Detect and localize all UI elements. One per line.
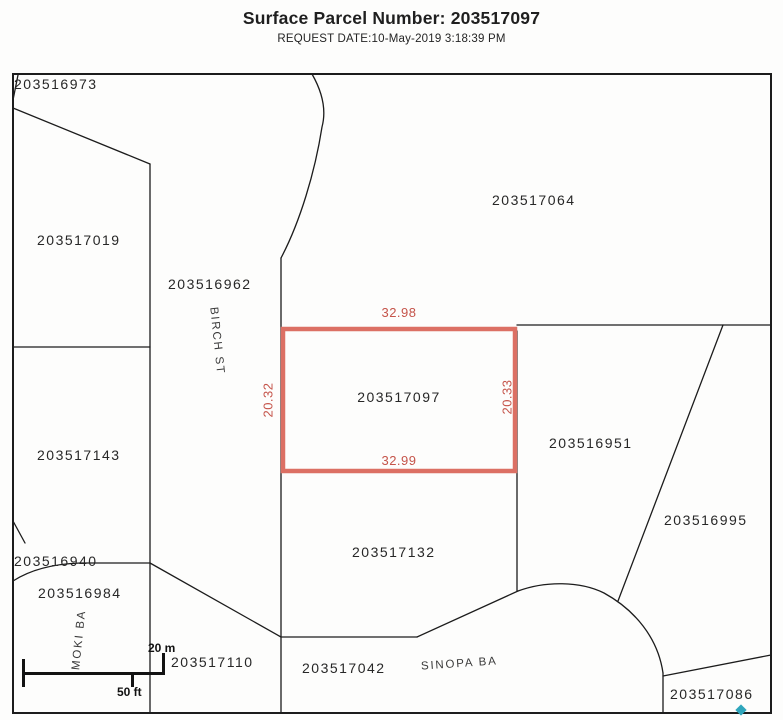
boundary-culdesac-arc [518, 584, 663, 673]
dimension-top: 32.98 [281, 306, 517, 319]
parcel-label-203517086: 203517086 [670, 687, 754, 701]
boundary-sinopa-diagonal [417, 591, 518, 637]
parcel-label-203517042: 203517042 [302, 661, 386, 675]
boundary-se-diagonal [663, 655, 771, 676]
parcel-label-203516995: 203516995 [664, 513, 748, 527]
parcel-label-203516940: 203516940 [14, 554, 98, 568]
parcel-label-203517064: 203517064 [492, 193, 576, 207]
parcel-label-203517143: 203517143 [37, 448, 121, 462]
boundary-nw-diagonal [13, 108, 150, 164]
parcel-label-203517132: 203517132 [352, 545, 436, 559]
parcel-map-page: Surface Parcel Number: 203517097 REQUEST… [0, 0, 783, 720]
parcel-label-203517110: 203517110 [171, 655, 254, 669]
dimension-left: 20.32 [262, 382, 275, 417]
scale-imperial-label: 50 ft [117, 686, 142, 698]
parcel-label-203516962: 203516962 [168, 277, 252, 291]
boundary-ne-diagonal [618, 325, 723, 601]
boundary-moki-diagonal [150, 563, 281, 637]
parcel-label-203516973: 203516973 [14, 77, 98, 91]
scale-bar-left-tick [22, 659, 25, 687]
boundary-top-curve [281, 74, 324, 258]
subject-parcel-label: 203517097 [281, 390, 517, 404]
parcel-boundaries-svg [0, 0, 783, 720]
parcel-label-203517019: 203517019 [37, 233, 121, 247]
parcel-label-203516951: 203516951 [549, 436, 633, 450]
scale-bar-metric-tick [162, 653, 165, 675]
scale-metric-label: 20 m [148, 642, 175, 654]
dimension-right: 20.33 [501, 379, 514, 414]
dimension-bottom: 32.99 [281, 454, 517, 467]
scale-bar-line [22, 672, 165, 675]
parcel-map: 203516973 203517019 203516962 203517064 … [0, 0, 783, 720]
parcel-label-203516984: 203516984 [38, 586, 122, 600]
boundary-sw-sliver [13, 521, 25, 543]
